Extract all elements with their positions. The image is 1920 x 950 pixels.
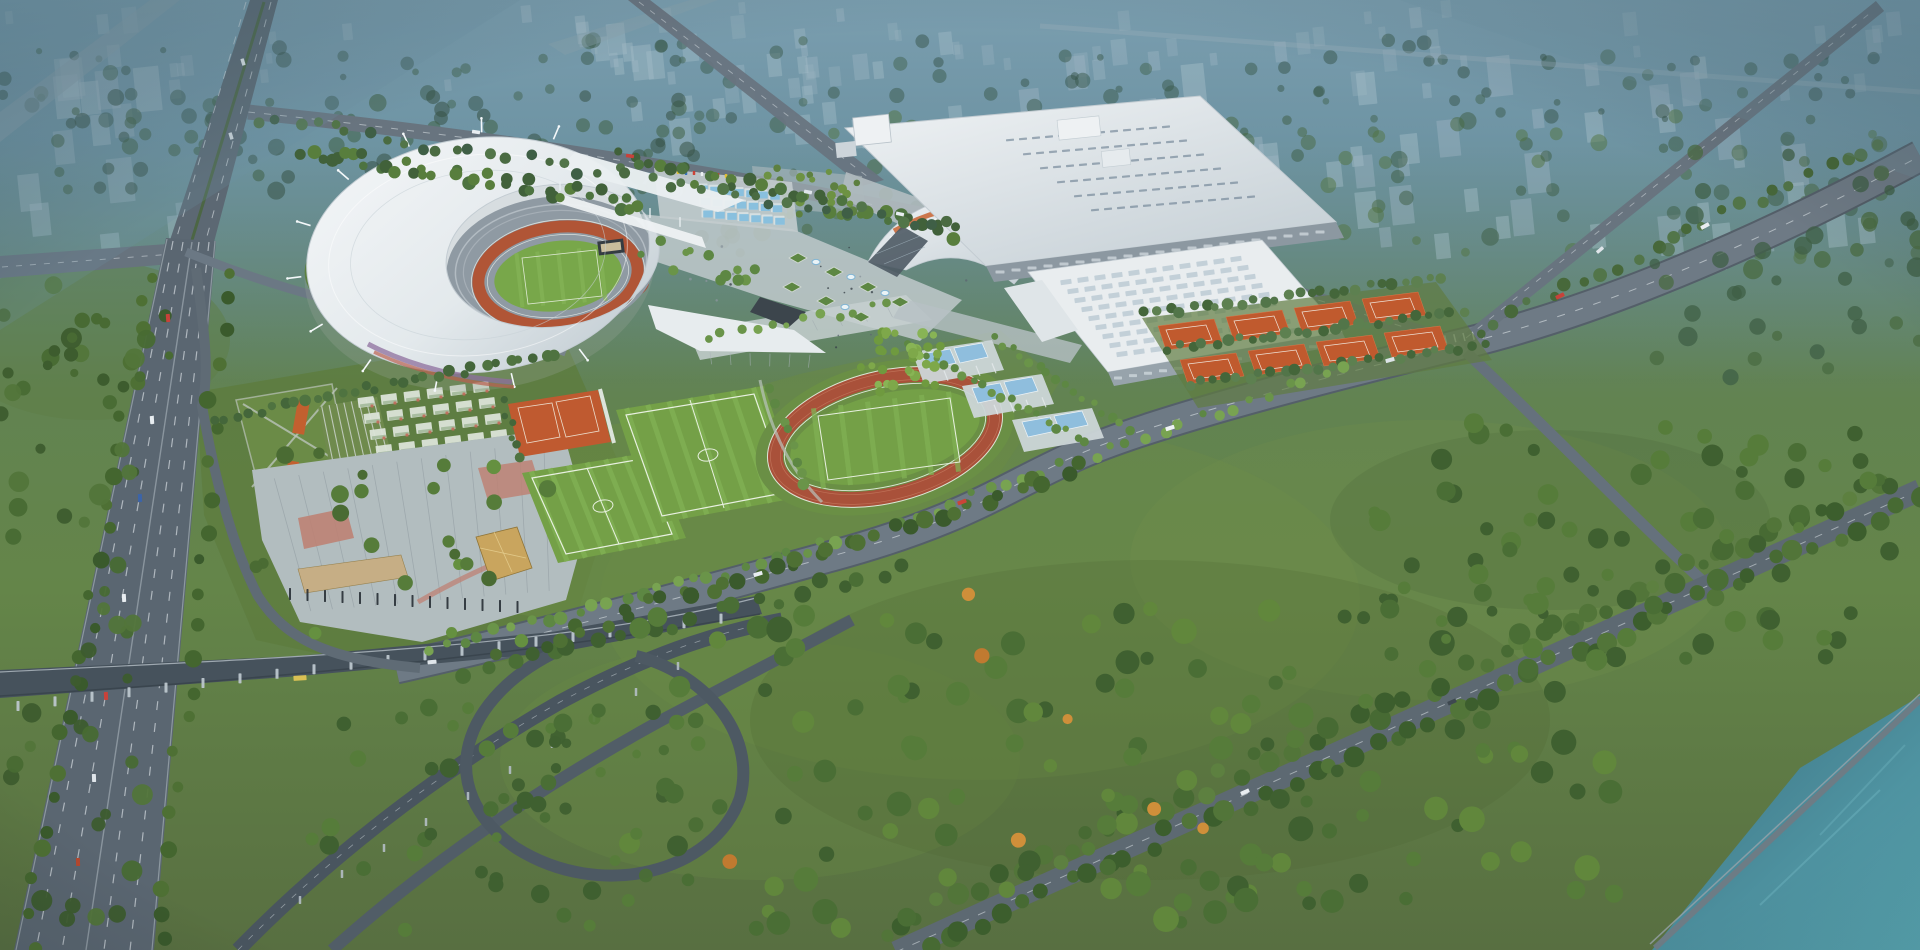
scene-root	[0, 0, 1920, 950]
vignette	[0, 0, 1920, 950]
sports-complex-aerial-rendering	[0, 0, 1920, 950]
screenshot-stage	[0, 0, 1920, 950]
